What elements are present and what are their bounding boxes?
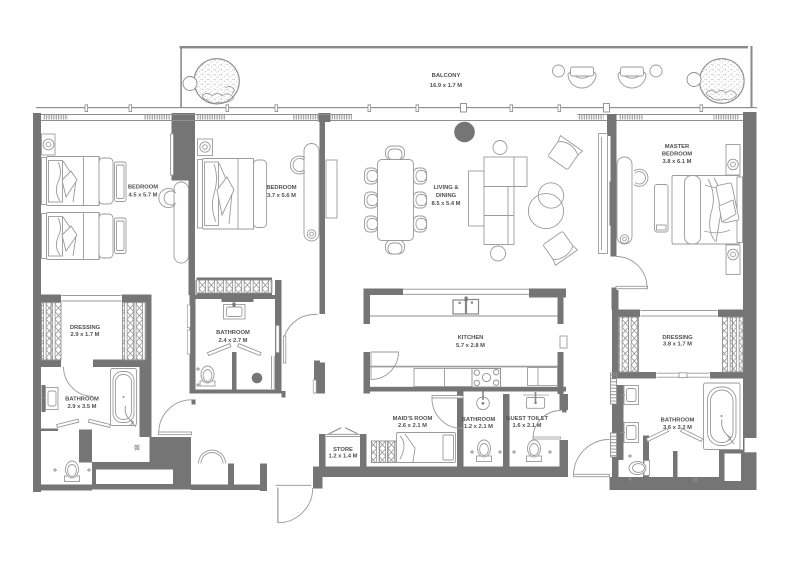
- svg-text:2.9 x 1.7 M: 2.9 x 1.7 M: [70, 332, 99, 338]
- svg-text:BALCONY: BALCONY: [432, 73, 461, 79]
- svg-text:BEDROOM: BEDROOM: [266, 185, 296, 191]
- svg-text:MASTER: MASTER: [665, 144, 690, 150]
- svg-text:DRESSING: DRESSING: [662, 335, 693, 341]
- svg-text:2.9 x 3.5 M: 2.9 x 3.5 M: [67, 404, 96, 410]
- svg-text:MAID'S ROOM: MAID'S ROOM: [393, 416, 433, 422]
- svg-text:8.5 x 5.4 M: 8.5 x 5.4 M: [431, 201, 460, 207]
- svg-text:DINING: DINING: [436, 193, 457, 199]
- svg-text:GUEST TOILET: GUEST TOILET: [506, 416, 549, 422]
- svg-text:LIVING &: LIVING &: [433, 185, 458, 191]
- svg-text:3.8 x 6.1 M: 3.8 x 6.1 M: [662, 159, 691, 165]
- svg-text:3.8 x 1.7 M: 3.8 x 1.7 M: [663, 341, 692, 347]
- svg-text:5.7 x 2.8 M: 5.7 x 2.8 M: [456, 343, 485, 349]
- svg-text:1.2 x 1.4 M: 1.2 x 1.4 M: [328, 454, 357, 460]
- svg-text:3.7 x 5.6 M: 3.7 x 5.6 M: [267, 193, 296, 199]
- svg-text:BEDROOM: BEDROOM: [662, 151, 692, 157]
- svg-text:4.5 x 5.7 M: 4.5 x 5.7 M: [128, 193, 157, 199]
- svg-text:BATHROOM: BATHROOM: [661, 418, 695, 424]
- svg-text:BATHROOM: BATHROOM: [462, 417, 496, 423]
- svg-text:STORE: STORE: [333, 447, 353, 453]
- svg-text:KITCHEN: KITCHEN: [458, 335, 484, 341]
- svg-text:BATHROOM: BATHROOM: [65, 397, 99, 403]
- svg-text:BATHROOM: BATHROOM: [216, 330, 250, 336]
- svg-text:DRESSING: DRESSING: [70, 325, 101, 331]
- svg-text:BEDROOM: BEDROOM: [128, 185, 158, 191]
- svg-text:16.9 x 1.7 M: 16.9 x 1.7 M: [430, 83, 462, 89]
- svg-text:1.2 x 2.1 M: 1.2 x 2.1 M: [464, 424, 493, 430]
- svg-text:2.4 x 2.7 M: 2.4 x 2.7 M: [218, 338, 247, 344]
- svg-text:2.6 x 2.1 M: 2.6 x 2.1 M: [398, 423, 427, 429]
